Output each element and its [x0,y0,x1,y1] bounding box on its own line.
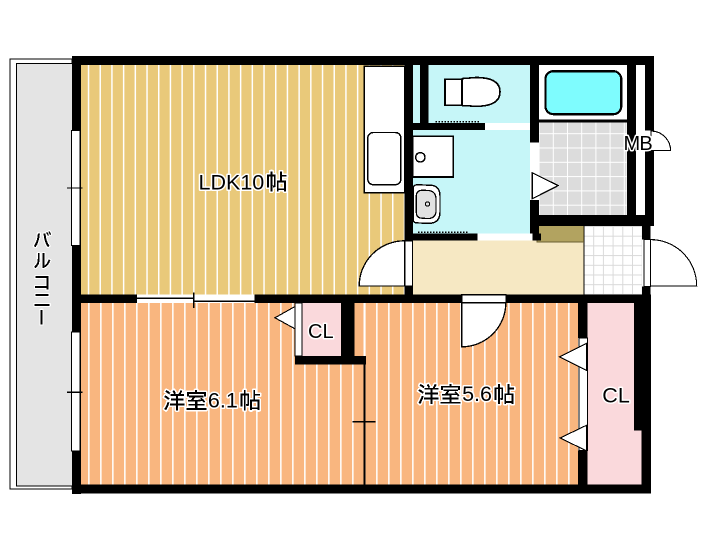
svg-text:CL: CL [308,321,334,343]
svg-text:MB: MB [624,133,653,155]
svg-text:CL: CL [602,384,630,408]
svg-text:6.1: 6.1 [208,388,238,412]
svg-text:5.6: 5.6 [462,382,492,406]
svg-text:LDK10: LDK10 [199,171,265,195]
